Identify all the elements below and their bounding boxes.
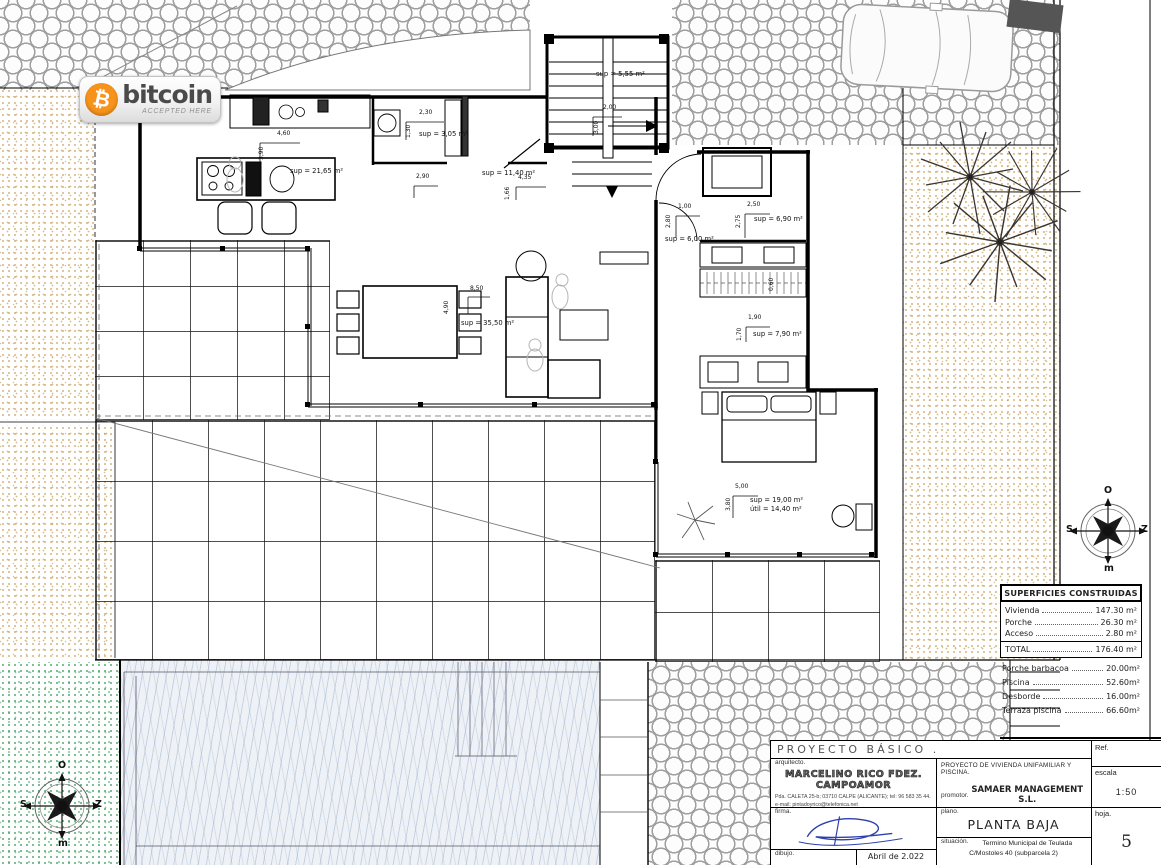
bitcoin-brand-text: bitcoin (122, 84, 212, 107)
promoter-label: promotor. (941, 792, 968, 799)
dark-wall-block (1006, 0, 1063, 33)
area-row-label: Vivienda (1005, 606, 1039, 615)
areas-table-total: TOTAL 176.40 m² (1000, 642, 1142, 658)
date-cell: Abril de 2.022 (856, 849, 936, 865)
terrain-diagonal-line (95, 418, 660, 568)
areas-table-rows: Vivienda 147.30 m² Porche 26.30 m² Acces… (1000, 602, 1142, 642)
kitchen-furniture (197, 95, 370, 234)
plan-drawing (0, 0, 1161, 865)
palm-tree-2 (965, 126, 1100, 262)
area-row-label: Porche (1005, 618, 1032, 627)
signature (779, 813, 929, 847)
sheet-cell: hoja. 5 (1091, 807, 1161, 865)
living-dining-furniture (337, 251, 648, 398)
compass-rose-right (1069, 498, 1147, 564)
architect-label: arquitecto. (775, 759, 932, 766)
total-label: TOTAL (1005, 645, 1030, 654)
plan-name-cell: plano. PLANTA BAJA (936, 807, 1091, 837)
table-row: Terraza piscina 66.60m² (1002, 706, 1140, 715)
table-row: TOTAL 176.40 m² (1005, 645, 1137, 654)
location-line2: C/Mostoles 40 (subparcela 2) (941, 849, 1086, 859)
dotted-leader (1042, 612, 1092, 613)
compass-rose-bottom-left (23, 773, 101, 839)
bedroom-furniture (702, 392, 872, 530)
extra-row-value: 20.00m² (1106, 664, 1140, 673)
dotted-leader (1072, 670, 1103, 671)
dotted-leader (1033, 684, 1103, 685)
bitcoin-tagline: ACCEPTED HERE (142, 108, 212, 115)
dotted-leader (1036, 635, 1103, 636)
location-label: situación. (941, 838, 968, 845)
glass-wall-posts (136, 34, 874, 557)
built-areas-table: SUPERFICIES CONSTRUIDAS Vivienda 147.30 … (1000, 584, 1142, 720)
scale-value: 1:50 (1091, 787, 1161, 797)
extra-row-value: 52.60m² (1106, 678, 1140, 687)
table-row: Vivienda 147.30 m² (1005, 606, 1137, 615)
floor-plan-sheet: sup = 5,55 m²sup = 3,05 m²sup = 21,65 m²… (0, 0, 1161, 865)
extra-row-value: 16.00m² (1106, 692, 1140, 701)
signature-cell: firma. (771, 807, 936, 849)
bath-dressing-furniture (700, 243, 806, 388)
table-row: Porche 26.30 m² (1005, 618, 1137, 627)
location-cell: situación. Termino Municipal de Teulada … (936, 837, 1091, 865)
car-top-view (840, 0, 1014, 97)
table-row: Porche barbacoa 20.00m² (1002, 664, 1140, 673)
plan-label: plano. (941, 808, 1086, 815)
area-row-label: Acceso (1005, 629, 1033, 638)
dotted-leader (1033, 651, 1092, 652)
area-row-value: 147.30 m² (1095, 606, 1137, 615)
pool-steps (455, 662, 517, 756)
extra-row-value: 66.60m² (1106, 706, 1140, 715)
entry-canopy (703, 148, 771, 196)
utility-room (374, 96, 468, 156)
glass-walls (140, 248, 876, 557)
stairs-direction-arrow-2 (606, 186, 618, 198)
sheet-number: 5 (1091, 832, 1161, 852)
promoter-name: SAMAER MANAGEMENT S.L. (968, 785, 1086, 805)
plant (677, 502, 715, 540)
overflow-channel-ticks (600, 700, 648, 812)
area-row-value: 2.80 m² (1106, 629, 1137, 638)
project-cell: PROYECTO DE VIVIENDA UNIFAMILIAR Y PISCI… (936, 758, 1091, 807)
scale-label: escala (1091, 766, 1161, 777)
table-row: Piscina 52.60m² (1002, 678, 1140, 687)
dotted-leader (1043, 698, 1103, 699)
table-bottom-rule (1000, 737, 1161, 739)
extra-row-label: Porche barbacoa (1002, 664, 1069, 673)
project-name: PROYECTO DE VIVIENDA UNIFAMILIAR Y PISCI… (941, 762, 1086, 776)
areas-extra-list: Porche barbacoa 20.00m² Piscina 52.60m² … (1000, 658, 1142, 715)
sheet-label: hoja. (1091, 807, 1161, 818)
project-type-title: PROYECTO BÁSICO . (771, 741, 1091, 758)
bitcoin-accepted-badge: ₿ bitcoin ACCEPTED HERE (79, 76, 221, 123)
bitcoin-logo-icon: ₿ (85, 83, 118, 116)
extra-row-label: Terraza piscina (1002, 706, 1062, 715)
architect-cell: arquitecto. MARCELINO RICO FDEZ. CAMPOAM… (771, 758, 936, 807)
table-row: Desborde 16.00m² (1002, 692, 1140, 701)
dotted-leader (1065, 712, 1104, 713)
table-row: Acceso 2.80 m² (1005, 629, 1137, 638)
plan-name: PLANTA BAJA (941, 817, 1086, 832)
drawing-label: dibujo. (775, 850, 852, 857)
total-value: 176.40 m² (1095, 645, 1137, 654)
palm-tree-3 (929, 178, 1070, 310)
scale-cell: escala 1:50 (1091, 766, 1161, 807)
architect-name: MARCELINO RICO FDEZ. CAMPOAMOR (775, 769, 932, 791)
title-block: PROYECTO BÁSICO . arquitecto. MARCELINO … (770, 740, 1161, 865)
ref-cell: Ref. (1091, 741, 1161, 766)
areas-table-title: SUPERFICIES CONSTRUIDAS (1000, 584, 1142, 602)
date-value: Abril de 2.022 (856, 852, 936, 861)
architect-address: Pda. CALETA 25-b; 03710 CALPE (ALICANTE)… (775, 794, 932, 801)
person-figures (227, 157, 568, 371)
extra-row-label: Desborde (1002, 692, 1040, 701)
extra-row-label: Piscina (1002, 678, 1030, 687)
bitcoin-symbol: ₿ (91, 87, 112, 111)
drawing-label-cell: dibujo. (771, 849, 856, 865)
access-path-curve (225, 30, 530, 90)
area-row-value: 26.30 m² (1101, 618, 1137, 627)
dotted-leader (1035, 624, 1098, 625)
